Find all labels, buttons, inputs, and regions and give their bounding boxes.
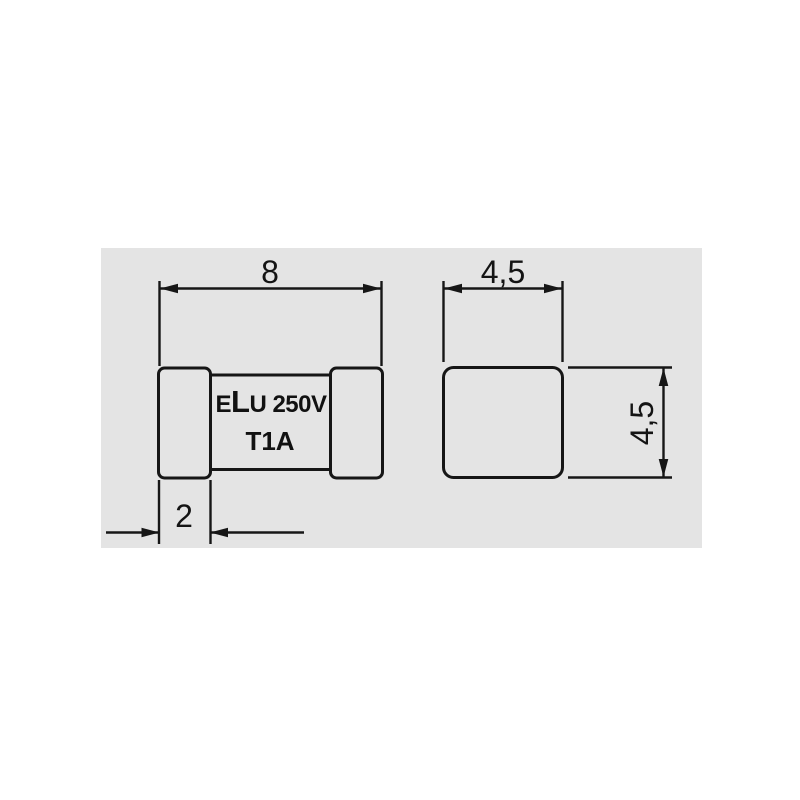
technical-drawing: ELU 250V T1A 8 2 — [0, 0, 800, 800]
dimension-value-cap-length: 2 — [175, 498, 193, 534]
dimension-value-total-length: 8 — [261, 254, 279, 290]
fuse-right-cap — [331, 368, 383, 478]
dimension-value-end-width: 4,5 — [481, 254, 525, 290]
dimension-value-end-height: 4,5 — [624, 401, 660, 445]
page: ELU 250V T1A 8 2 — [0, 0, 800, 800]
fuse-left-cap — [159, 368, 211, 478]
fuse-brand-letter-e: E — [215, 391, 231, 418]
fuse-brand-letter-l: L — [231, 384, 249, 419]
fuse-marking-line2: T1A — [245, 426, 294, 456]
fuse-brand-rest: U 250V — [249, 391, 327, 418]
